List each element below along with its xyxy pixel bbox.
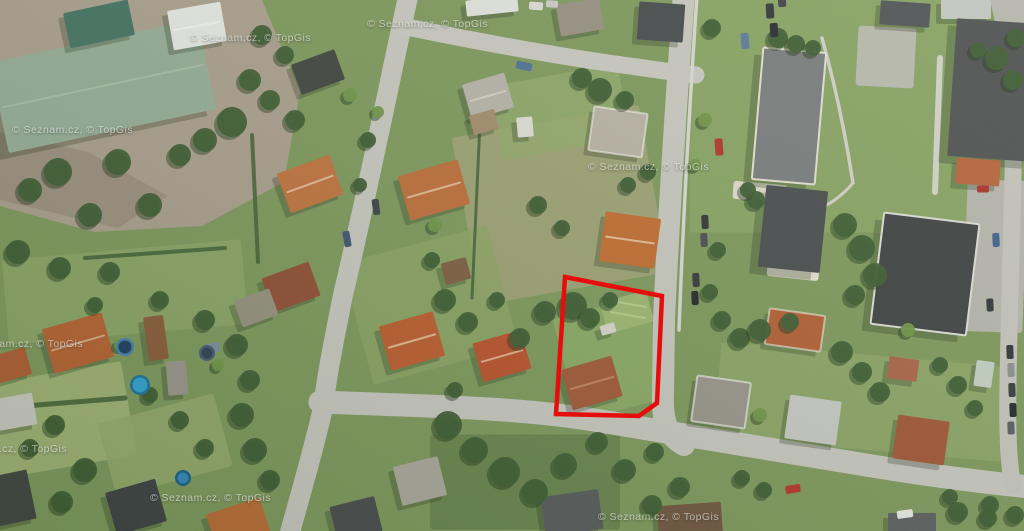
- photo-overlay: [0, 0, 1024, 531]
- aerial-imagery: [0, 0, 1024, 531]
- film-grain: [0, 0, 1024, 531]
- aerial-map[interactable]: © Seznam.cz, © TopGis© Seznam.cz, © TopG…: [0, 0, 1024, 531]
